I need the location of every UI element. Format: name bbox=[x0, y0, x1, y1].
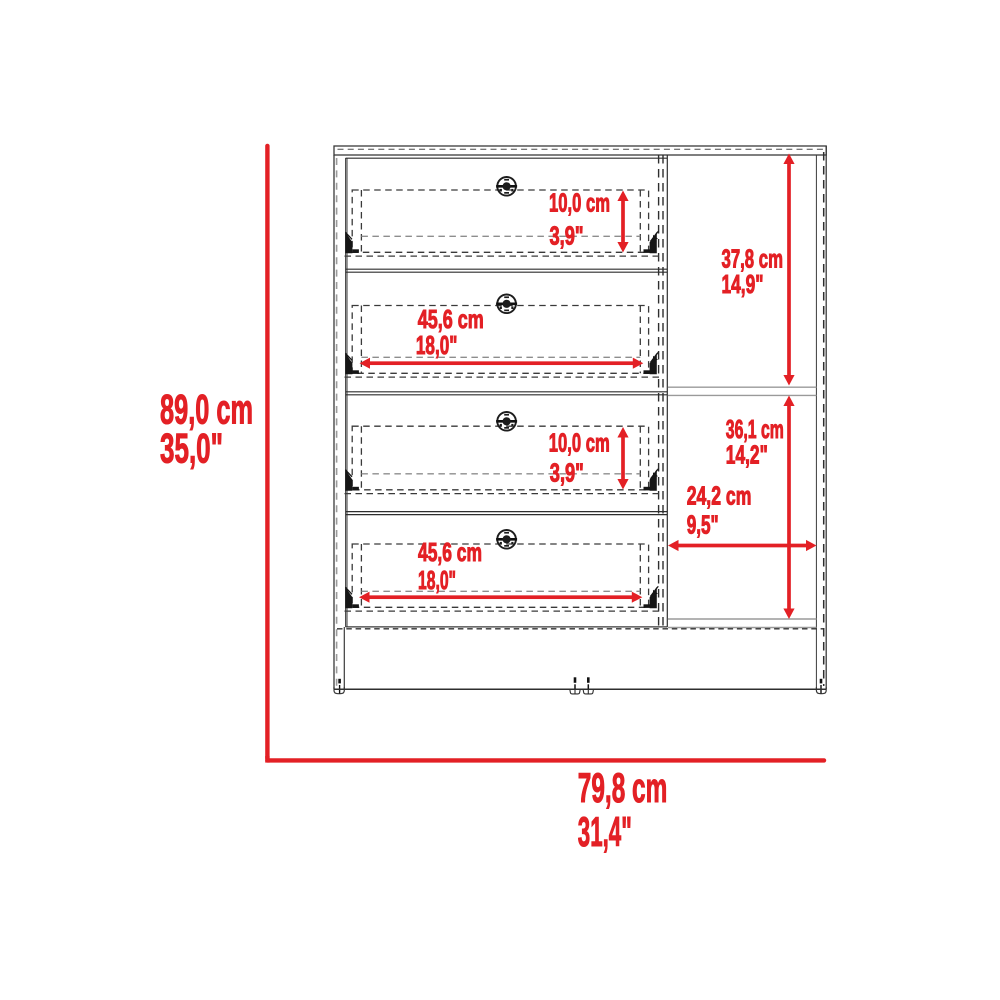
svg-text:35,0": 35,0" bbox=[160, 425, 223, 472]
svg-text:45,6 cm: 45,6 cm bbox=[418, 537, 482, 567]
svg-text:9,5": 9,5" bbox=[687, 509, 719, 539]
svg-text:31,4": 31,4" bbox=[578, 808, 632, 855]
svg-text:18,0": 18,0" bbox=[416, 330, 458, 360]
svg-text:14,2": 14,2" bbox=[726, 440, 768, 470]
svg-text:24,2 cm: 24,2 cm bbox=[687, 480, 752, 510]
svg-text:10,0 cm: 10,0 cm bbox=[549, 428, 610, 458]
svg-text:14,9": 14,9" bbox=[722, 269, 764, 299]
svg-text:3,9": 3,9" bbox=[550, 457, 584, 487]
svg-text:18,0": 18,0" bbox=[418, 565, 456, 595]
svg-text:3,9": 3,9" bbox=[550, 220, 584, 250]
svg-text:10,0 cm: 10,0 cm bbox=[549, 187, 610, 217]
svg-text:79,8 cm: 79,8 cm bbox=[578, 764, 668, 811]
